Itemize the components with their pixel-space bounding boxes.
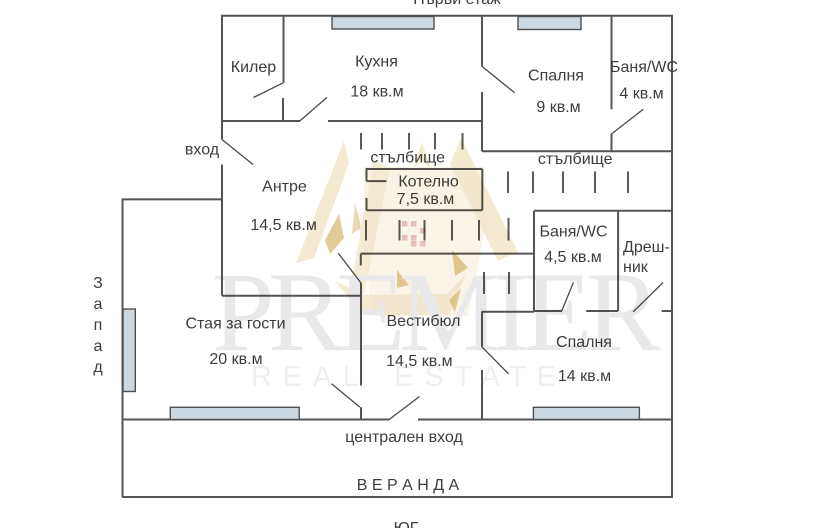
svg-text:18 кв.м: 18 кв.м (350, 83, 403, 100)
svg-text:В Е Р А Н Д А: В Е Р А Н Д А (357, 477, 460, 494)
svg-text:Първи етаж: Първи етаж (413, 0, 501, 8)
svg-text:Баня/WC: Баня/WC (610, 59, 678, 76)
svg-text:вход: вход (185, 142, 220, 159)
svg-text:д: д (93, 359, 103, 376)
svg-text:Килер: Килер (231, 59, 276, 76)
svg-text:Спалня: Спалня (528, 67, 584, 84)
svg-text:а: а (94, 296, 103, 313)
svg-text:Кухня: Кухня (355, 54, 398, 71)
svg-text:Баня/WC: Баня/WC (540, 223, 608, 240)
svg-text:PREMIER: PREMIER (212, 250, 662, 375)
svg-text:а: а (94, 338, 103, 355)
svg-text:14,5 кв.м: 14,5 кв.м (250, 217, 317, 234)
svg-text:4 кв.м: 4 кв.м (619, 86, 663, 103)
svg-text:ЮГ: ЮГ (394, 520, 419, 528)
svg-text:9 кв.м: 9 кв.м (536, 99, 580, 116)
svg-text:Антре: Антре (262, 179, 307, 196)
svg-text:З: З (93, 275, 103, 292)
svg-text:REAL ESTATE: REAL ESTATE (251, 361, 567, 393)
svg-text:стълбище: стълбище (538, 151, 613, 168)
svg-text:п: п (94, 317, 103, 334)
svg-text:централен вход: централен вход (345, 429, 463, 446)
